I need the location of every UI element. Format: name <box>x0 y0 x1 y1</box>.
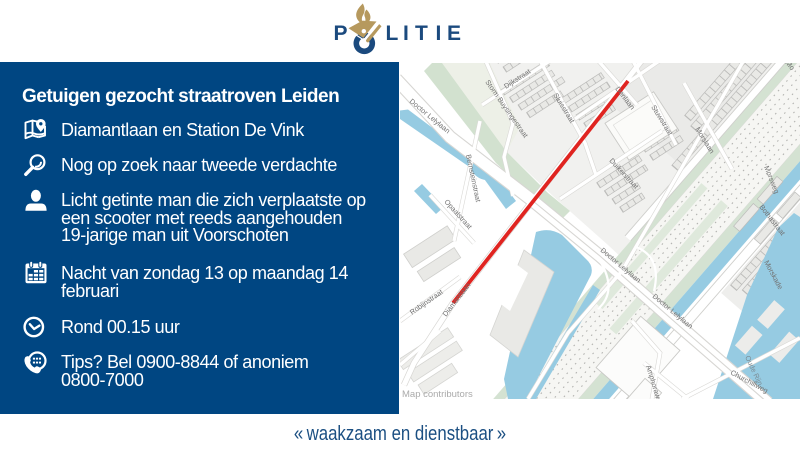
svg-text:Map contributors: Map contributors <box>402 389 473 399</box>
svg-text:L: L <box>386 22 399 45</box>
svg-text:I: I <box>436 22 442 45</box>
svg-text:I: I <box>403 22 409 45</box>
svg-text:P: P <box>334 22 348 45</box>
svg-text:T: T <box>415 22 428 45</box>
svg-text:E: E <box>447 22 461 45</box>
